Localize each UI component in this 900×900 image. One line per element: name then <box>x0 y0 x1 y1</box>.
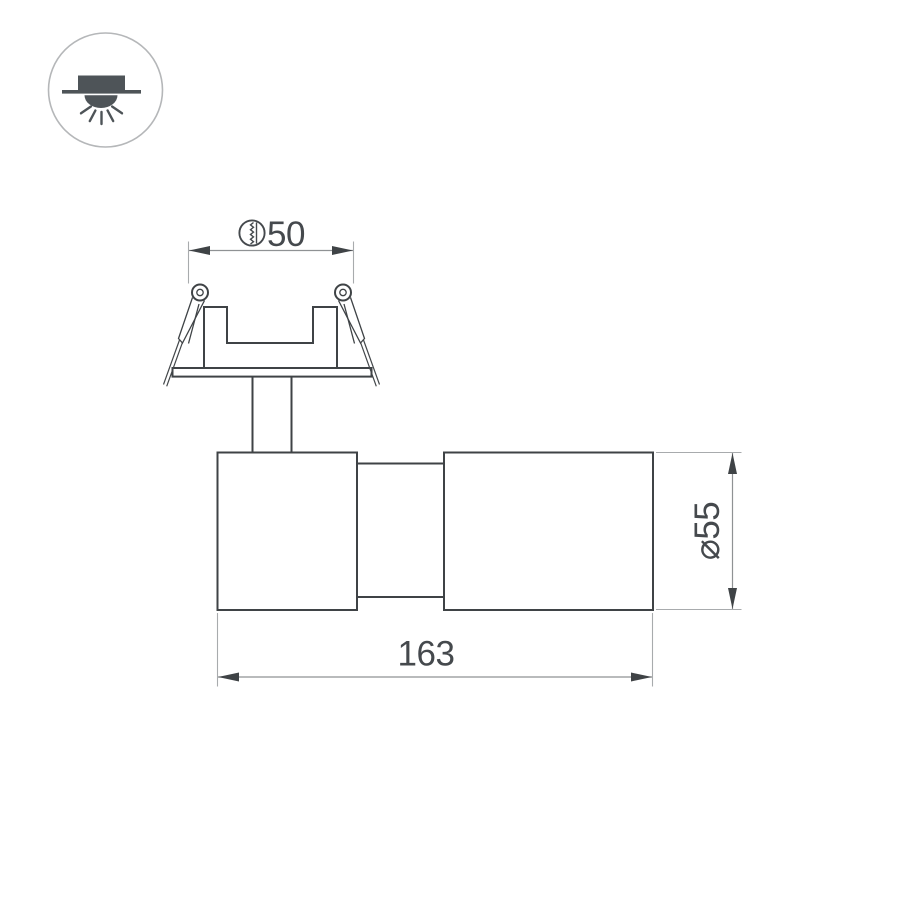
clip-wire <box>164 340 180 385</box>
technical-dimension-drawing: 50 ⌀55 163 <box>0 0 900 900</box>
arrow-right <box>332 246 353 255</box>
arrow-up <box>728 453 737 474</box>
lamp-front-cylinder <box>444 453 653 611</box>
cutout-dimension-label: 50 <box>267 215 305 254</box>
dimension-cutout: 50 <box>189 215 354 284</box>
clip-wire <box>360 342 376 387</box>
dimension-diameter: ⌀55 <box>656 453 742 610</box>
icon-ceiling-line <box>62 90 141 94</box>
mounting-flange <box>173 368 372 377</box>
clip-arm <box>179 298 205 344</box>
stem <box>253 377 292 452</box>
clip-pivot <box>335 285 351 301</box>
clip-wire <box>167 342 183 387</box>
dimension-length: 163 <box>218 613 653 687</box>
clip-wire <box>364 340 380 385</box>
lamp-rear-section <box>218 453 358 611</box>
saw-cut-hole-icon <box>239 220 264 245</box>
length-dimension-label: 163 <box>398 635 455 674</box>
fixture-drawing <box>164 285 654 611</box>
arrow-right <box>631 673 652 682</box>
drawing-page: 50 ⌀55 163 <box>0 0 900 900</box>
arrow-down <box>728 588 737 609</box>
recessed-housing-channel <box>204 307 337 368</box>
spring-clip-right <box>335 285 380 387</box>
recessed-downlight-icon <box>49 33 163 147</box>
arrow-left <box>218 673 239 682</box>
spring-clip-left <box>164 285 209 387</box>
lamp-body <box>218 453 654 611</box>
icon-light-rays <box>81 107 122 125</box>
diameter-dimension-label: ⌀55 <box>688 502 727 561</box>
clip-pivot <box>192 285 208 301</box>
clip-arm <box>339 298 365 344</box>
icon-recessed-can <box>78 76 125 91</box>
arrow-left <box>189 246 210 255</box>
